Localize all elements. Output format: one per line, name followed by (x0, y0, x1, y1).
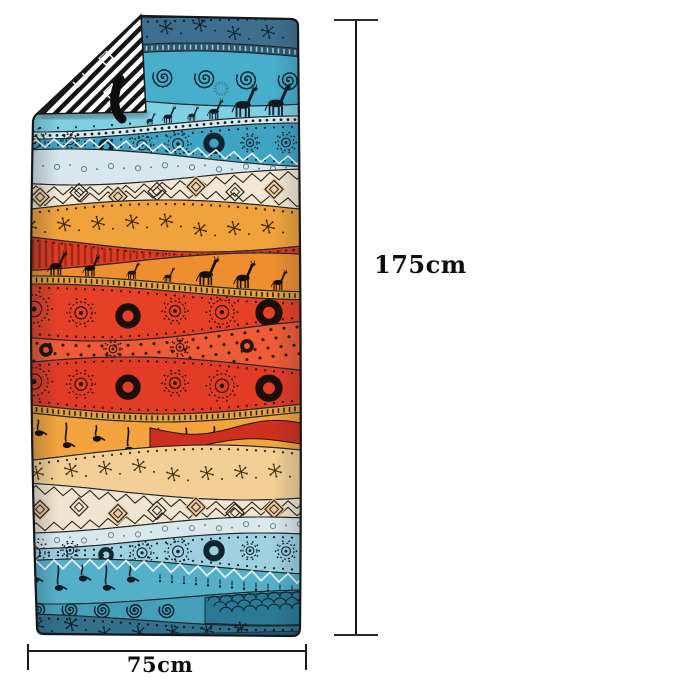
height-dimension-line (355, 20, 357, 635)
width-dimension-left-tick (27, 644, 29, 670)
width-label: 75cm (114, 652, 206, 677)
height-dimension-top-tick (334, 19, 378, 21)
towel-illustration (0, 0, 675, 688)
product-size-figure: 175cm 75cm (0, 0, 675, 688)
height-label: 175cm (374, 250, 467, 279)
width-dimension-right-tick (305, 644, 307, 670)
height-dimension-bottom-tick (334, 634, 378, 636)
